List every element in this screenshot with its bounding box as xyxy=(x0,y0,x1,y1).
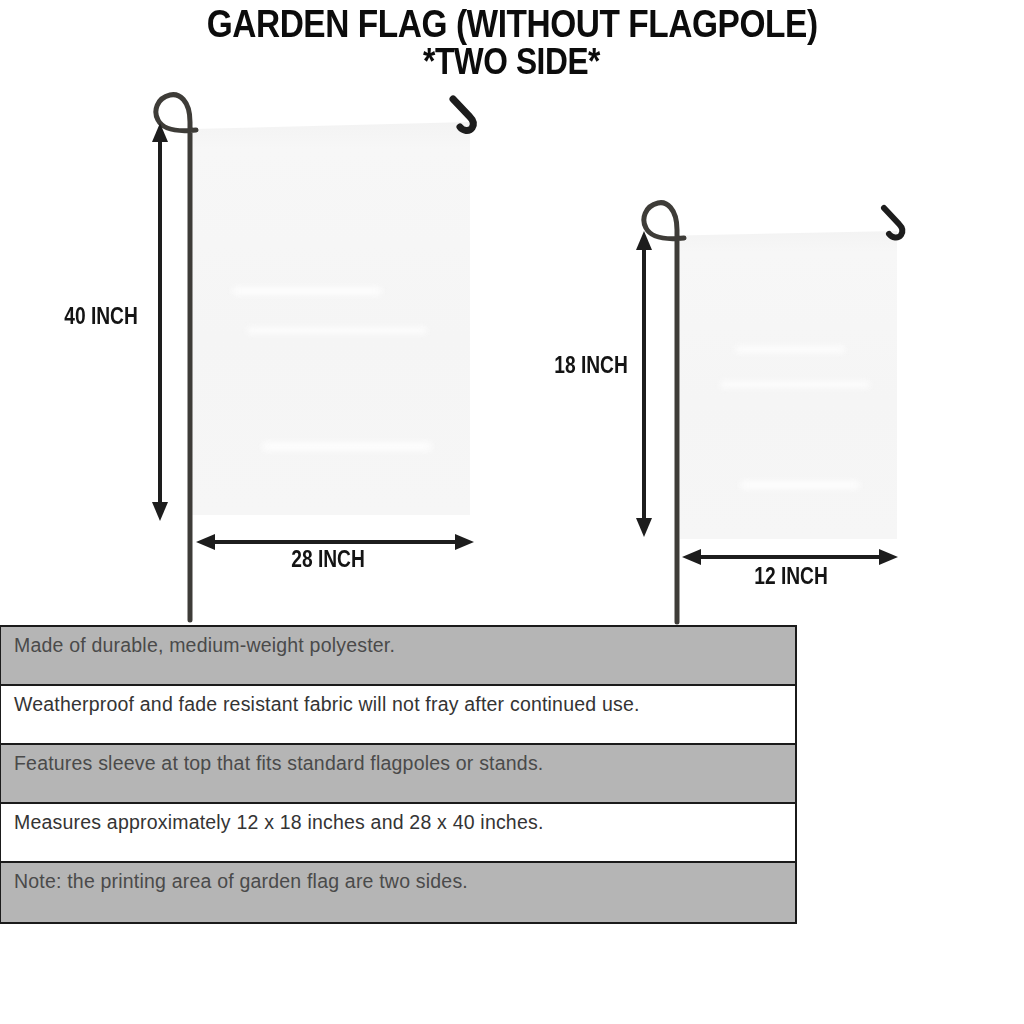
spec-row-sleeve: Features sleeve at top that fits standar… xyxy=(1,745,795,804)
spec-text: Features sleeve at top that fits standar… xyxy=(14,752,543,774)
small-flag-width-label: 12 INCH xyxy=(691,562,891,590)
spec-text: Weatherproof and fade resistant fabric w… xyxy=(14,693,640,715)
spec-row-material: Made of durable, medium-weight polyester… xyxy=(1,627,795,686)
spec-text: Made of durable, medium-weight polyester… xyxy=(14,634,395,656)
spec-text: Measures approximately 12 x 18 inches an… xyxy=(14,811,544,833)
spec-row-note: Note: the printing area of garden flag a… xyxy=(1,863,795,922)
spec-row-weatherproof: Weatherproof and fade resistant fabric w… xyxy=(1,686,795,745)
small-flag-pole xyxy=(644,203,684,622)
garden-flag-infographic: GARDEN FLAG (WITHOUT FLAGPOLE) *TWO SIDE… xyxy=(0,0,1024,1024)
large-flag-hook-icon xyxy=(453,99,473,131)
large-flag-width-label: 28 INCH xyxy=(228,545,428,573)
spec-text: Note: the printing area of garden flag a… xyxy=(14,870,468,892)
spec-table: Made of durable, medium-weight polyester… xyxy=(0,625,797,924)
spec-row-measures: Measures approximately 12 x 18 inches an… xyxy=(1,804,795,863)
small-flag-hook-icon xyxy=(884,208,902,238)
small-flag-height-label: 18 INCH xyxy=(516,351,666,379)
small-flag-height-arrow xyxy=(636,231,652,537)
large-flag-height-label: 40 INCH xyxy=(46,302,156,330)
